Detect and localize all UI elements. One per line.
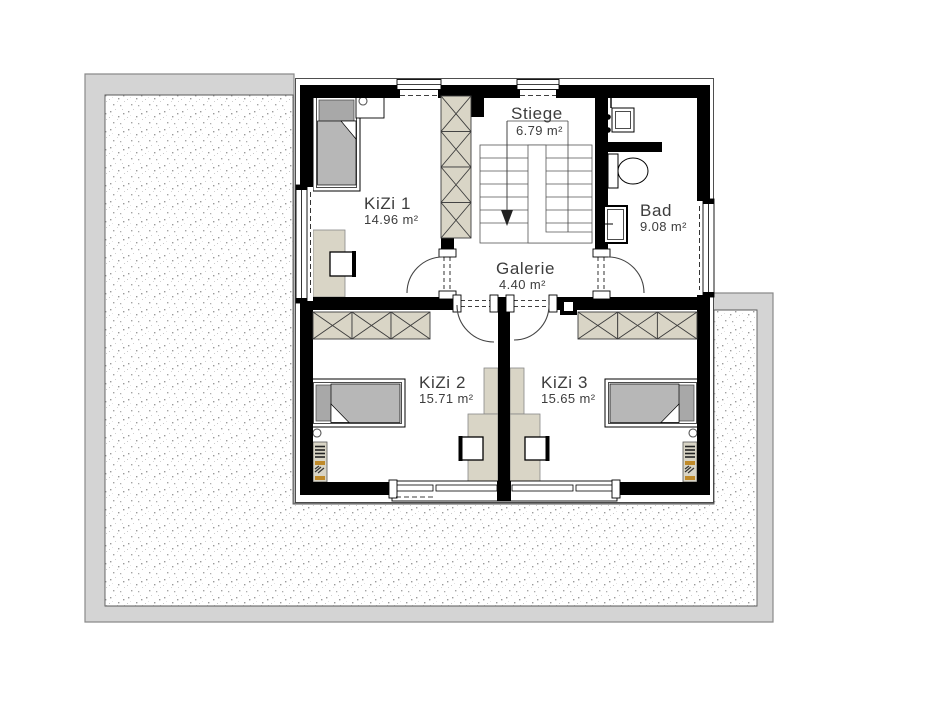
bed-icon [310,379,405,427]
wall-kizi2-kizi3 [498,310,510,495]
label-bad-area: 9.08 m² [640,219,687,234]
bed-icon [605,379,700,427]
label-kizi2-area: 15.71 m² [419,391,474,406]
wall-bad-partition [608,142,662,152]
shelf-unit-icon [313,442,327,482]
wardrobe-kizi1 [441,96,471,238]
lamp-icon [689,429,697,437]
wall-top [300,85,710,98]
floor-plan-drawing: KiZi 1 14.96 m² Stiege 6.79 m² Bad 9.08 … [0,0,942,709]
wardrobe-kizi3 [578,312,697,339]
label-kizi1-area: 14.96 m² [364,212,419,227]
floor-plan-canvas: KiZi 1 14.96 m² Stiege 6.79 m² Bad 9.08 … [0,0,942,709]
bed-icon [313,94,360,191]
label-stiege-area: 6.79 m² [516,123,563,138]
wall-divider-left [300,297,457,310]
desk-shelf-icon [484,368,498,414]
label-stiege-name: Stiege [511,104,563,123]
label-kizi3-name: KiZi 3 [541,373,588,392]
label-galerie-area: 4.40 m² [499,277,546,292]
chair-icon [525,436,550,461]
window-top-1 [397,80,441,99]
vanity-icon [604,206,627,243]
bed-pillow [316,385,333,421]
label-kizi2-name: KiZi 2 [419,373,466,392]
shelf-unit-icon [683,442,697,482]
label-kizi1-name: KiZi 1 [364,194,411,213]
wardrobe-kizi2 [313,312,430,339]
label-galerie-name: Galerie [496,259,555,278]
wall-stub-top-stair [471,96,484,117]
column-post [560,298,577,315]
desk-shelf-icon [510,368,524,414]
chair-icon [459,436,484,461]
window-right-bad [697,199,714,297]
window-top-2 [517,80,559,99]
window-left [296,185,313,303]
lamp-icon [359,97,367,105]
label-bad-name: Bad [640,201,672,220]
label-kizi3-area: 15.65 m² [541,391,596,406]
chair-icon [330,251,356,277]
bed-pillow [677,385,694,421]
lamp-icon [313,429,321,437]
window-bottom-band [389,480,620,501]
